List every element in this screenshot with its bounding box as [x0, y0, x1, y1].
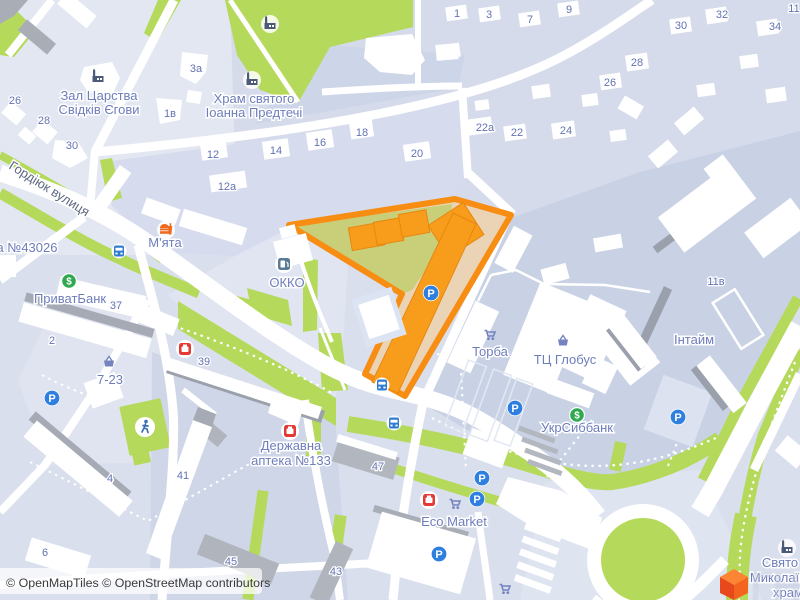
svg-text:16: 16: [314, 137, 326, 149]
svg-text:ПриватБанк: ПриватБанк: [34, 291, 106, 306]
svg-text:26: 26: [604, 77, 616, 89]
svg-text:14: 14: [270, 145, 282, 157]
svg-text:12а: 12а: [218, 181, 237, 193]
svg-text:47: 47: [372, 461, 384, 473]
svg-text:Зал Царства: Зал Царства: [60, 88, 138, 103]
svg-text:Державна: Державна: [261, 438, 322, 453]
svg-text:аптека №133: аптека №133: [251, 453, 331, 468]
svg-text:Інтайм: Інтайм: [674, 332, 714, 347]
svg-text:11в: 11в: [707, 276, 724, 288]
svg-text:6: 6: [42, 547, 48, 559]
svg-text:Eco Market: Eco Market: [421, 514, 487, 529]
svg-text:1: 1: [454, 8, 460, 20]
svg-text:2: 2: [49, 335, 55, 347]
svg-text:Храм святого: Храм святого: [214, 91, 295, 106]
svg-text:ГН: ГН: [750, 565, 800, 600]
svg-text:4: 4: [107, 473, 113, 485]
svg-text:26: 26: [9, 95, 21, 107]
svg-text:3а: 3а: [190, 63, 203, 75]
svg-text:1в: 1в: [164, 108, 176, 120]
svg-text:28: 28: [38, 115, 50, 127]
svg-text:28: 28: [631, 57, 643, 69]
svg-text:30: 30: [66, 140, 78, 152]
svg-text:22: 22: [511, 127, 523, 139]
svg-text:39: 39: [198, 356, 210, 368]
svg-text:43: 43: [330, 566, 342, 578]
svg-text:20: 20: [411, 148, 423, 160]
svg-text:М'ята: М'ята: [148, 235, 182, 250]
svg-text:18: 18: [356, 127, 368, 139]
svg-text:ТЦ Глобус: ТЦ Глобус: [534, 352, 597, 367]
svg-text:37: 37: [110, 300, 122, 312]
svg-text:45: 45: [225, 556, 237, 568]
svg-text:22а: 22а: [476, 122, 495, 134]
svg-text:ОККО: ОККО: [269, 275, 304, 290]
svg-text:41: 41: [177, 470, 189, 482]
svg-text:Торба: Торба: [472, 344, 509, 359]
svg-text:34: 34: [769, 21, 781, 33]
svg-text:а №43026: а №43026: [0, 240, 57, 255]
svg-text:Іоанна Предтечі: Іоанна Предтечі: [206, 105, 303, 120]
svg-text:9: 9: [566, 4, 572, 16]
svg-text:7: 7: [527, 14, 533, 26]
svg-text:12: 12: [207, 149, 219, 161]
svg-text:Свідків Єгови: Свідків Єгови: [58, 102, 139, 117]
svg-text:УкрСиббанк: УкрСиббанк: [541, 420, 613, 435]
svg-text:32: 32: [716, 9, 728, 21]
svg-text:11: 11: [788, 3, 799, 15]
svg-text:30: 30: [675, 20, 687, 32]
svg-text:3: 3: [486, 9, 492, 21]
svg-text:24: 24: [560, 125, 572, 137]
svg-text:© OpenMapTiles © OpenStreetMap: © OpenMapTiles © OpenStreetMap contribut…: [6, 576, 270, 590]
svg-text:7-23: 7-23: [97, 372, 123, 387]
